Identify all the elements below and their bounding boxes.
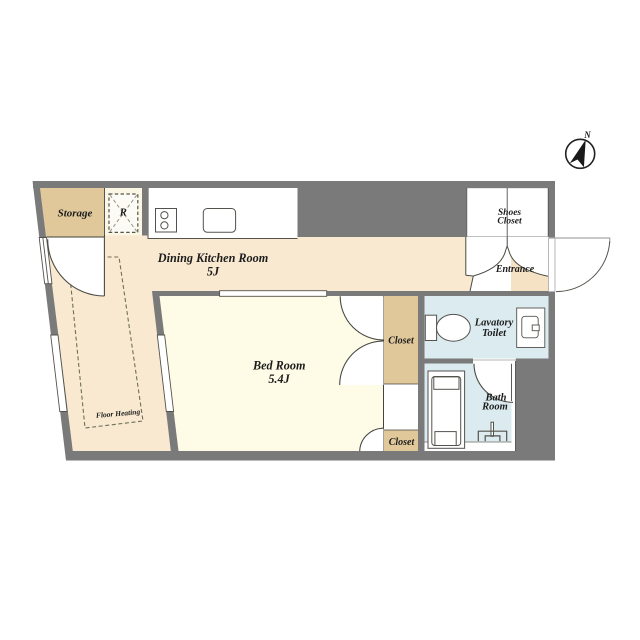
svg-text:Toilet: Toilet <box>482 328 507 339</box>
svg-text:Storage: Storage <box>58 208 93 220</box>
svg-text:5.4J: 5.4J <box>268 372 290 386</box>
svg-text:Dining Kitchen Room: Dining Kitchen Room <box>157 251 268 265</box>
svg-text:Closet: Closet <box>389 437 416 448</box>
svg-text:Entrance: Entrance <box>495 264 535 275</box>
svg-text:R: R <box>119 208 127 219</box>
svg-text:Closet: Closet <box>388 335 415 346</box>
svg-text:Bed Room: Bed Room <box>252 359 305 373</box>
svg-text:Closet: Closet <box>497 217 522 227</box>
svg-text:5J: 5J <box>207 265 220 279</box>
svg-text:N: N <box>583 130 591 140</box>
svg-text:Room: Room <box>481 402 508 413</box>
